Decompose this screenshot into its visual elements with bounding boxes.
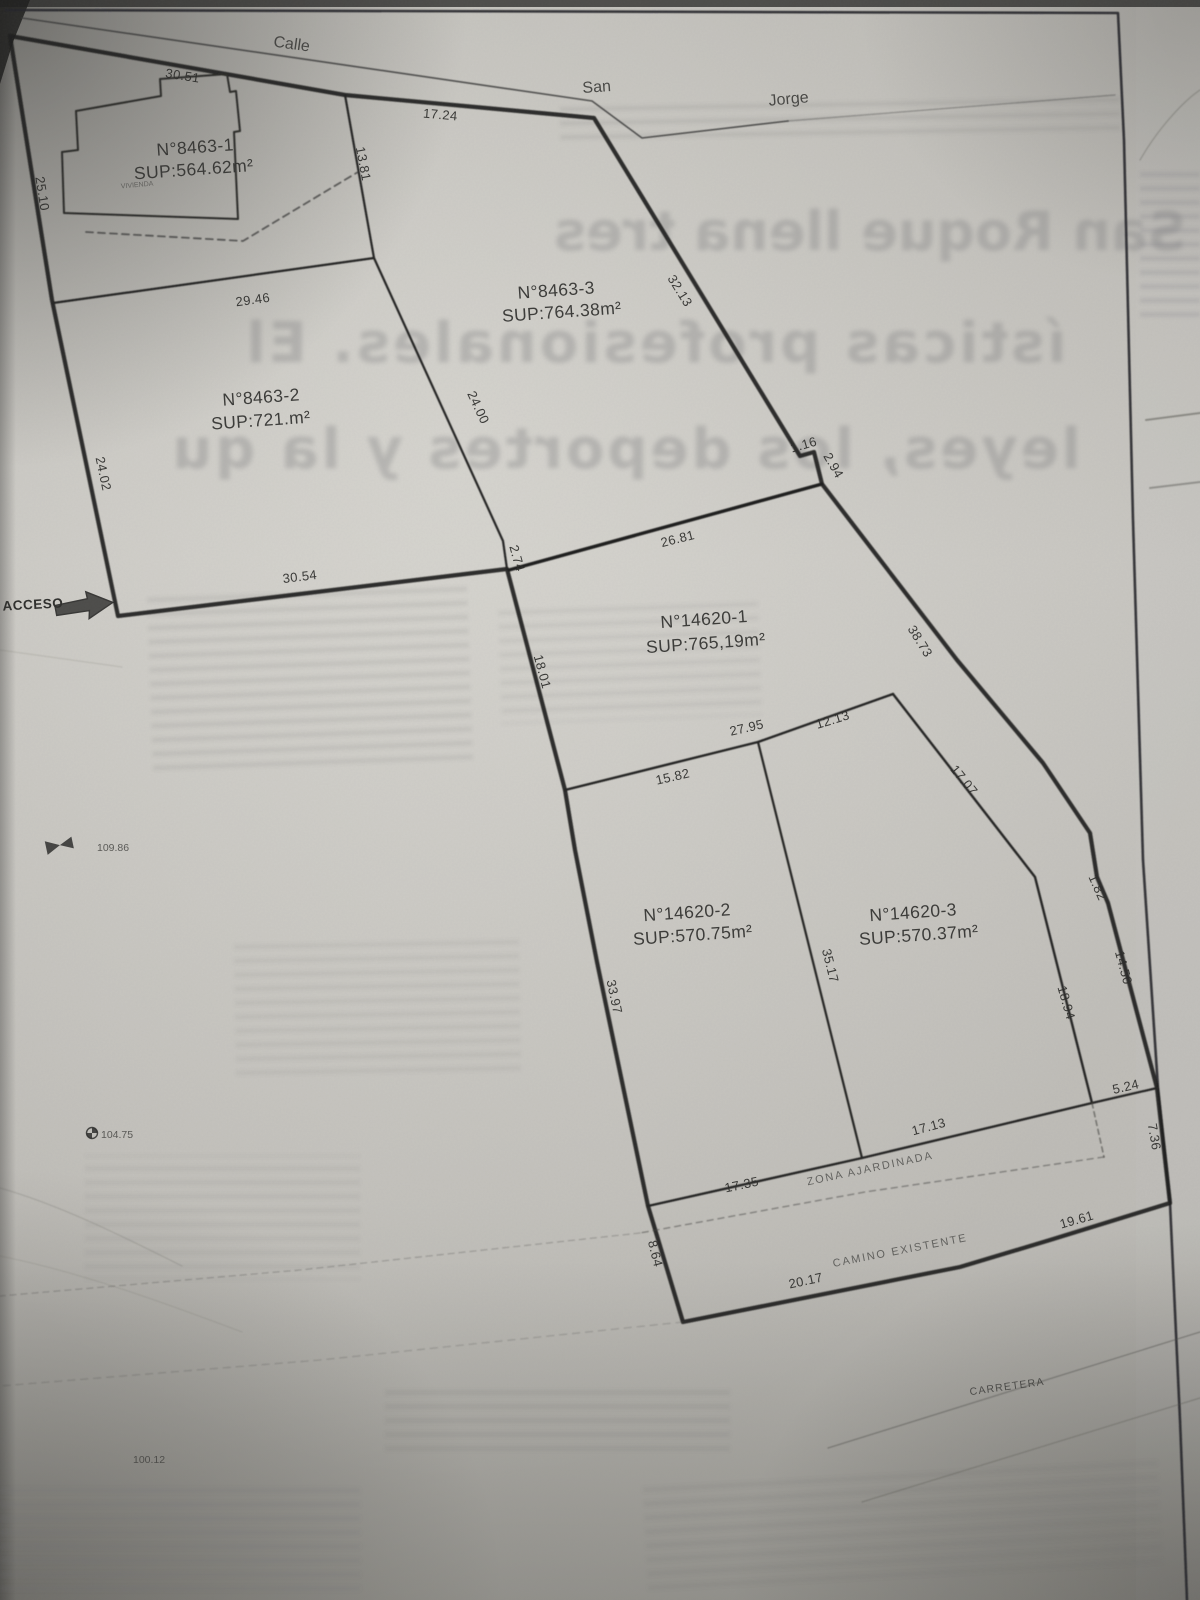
plot-plan-svg: San Roque llena tres ísticas profesional… (0, 0, 1200, 1600)
photo-grain-overlay (0, 0, 1200, 1600)
scanned-plot-plan-photo: San Roque llena tres ísticas profesional… (0, 0, 1200, 1600)
